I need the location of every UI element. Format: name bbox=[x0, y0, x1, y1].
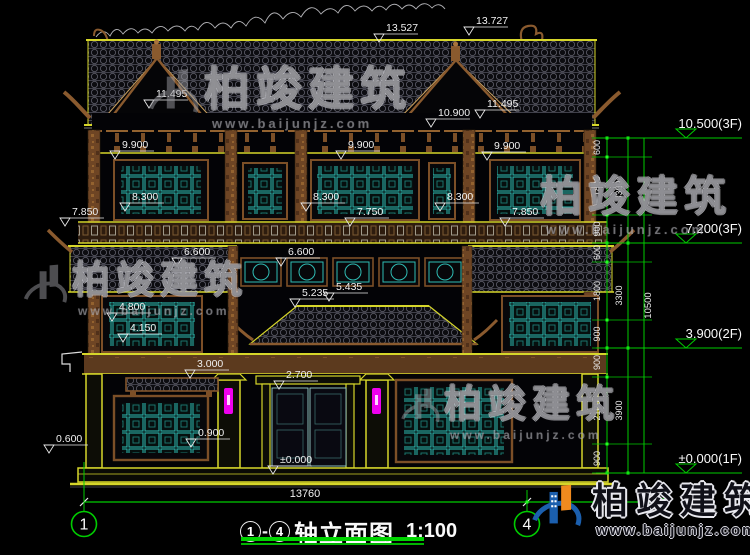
spot-elevation-value: 11.495 bbox=[156, 88, 187, 100]
spot-elevation-value: ±0.000 bbox=[280, 454, 312, 466]
dimension-node bbox=[606, 156, 609, 159]
spot-elevation-value: 13.727 bbox=[476, 15, 508, 27]
spot-elevation-value: 7.850 bbox=[512, 206, 538, 218]
spot-elevation-value: 7.850 bbox=[72, 206, 98, 218]
dimension-segment-value: 1800 bbox=[592, 176, 602, 196]
spot-elevation-value: 6.600 bbox=[288, 246, 314, 258]
spot-elevation-value: 4.800 bbox=[119, 301, 145, 313]
spot-elevation-value: 3.000 bbox=[197, 358, 223, 370]
dimension-node bbox=[606, 443, 609, 446]
spot-elevation-value: 13.527 bbox=[386, 22, 418, 34]
dimension-segment-value: 600 bbox=[592, 140, 602, 155]
axis-bubble-1-label: 1 bbox=[80, 517, 89, 534]
building-graphics bbox=[48, 4, 634, 487]
dimension-segment-value: 2100 bbox=[592, 400, 602, 420]
spot-elevation-value: 9.900 bbox=[122, 139, 148, 151]
dimension-segment-value: 900 bbox=[592, 326, 602, 341]
spot-elevation-value: 8.300 bbox=[447, 191, 473, 203]
dimension-segment-value: 900 bbox=[592, 451, 602, 466]
spot-elevation-value: 11.495 bbox=[487, 98, 518, 110]
title-underline-2 bbox=[241, 543, 424, 545]
spot-elevation-value: 0.900 bbox=[198, 427, 224, 439]
axis-bubble-4-label: 4 bbox=[523, 517, 532, 534]
spot-elevation-value: 2.700 bbox=[286, 369, 312, 381]
dimension-segment-value: 900 bbox=[592, 355, 602, 370]
spot-elevation-value: 0.600 bbox=[56, 433, 82, 445]
dimension-segment-value: 900 bbox=[592, 221, 602, 236]
spot-elevation-value: 4.150 bbox=[130, 322, 156, 334]
spot-elevation-value: 8.300 bbox=[313, 191, 339, 203]
dimension-node bbox=[606, 261, 609, 264]
dimension-segment-value: 600 bbox=[592, 245, 602, 260]
spot-elevation-triangle bbox=[464, 27, 474, 35]
spot-elevation-value: 10.900 bbox=[438, 107, 470, 119]
dimension-segment-value: 1800 bbox=[592, 281, 602, 301]
spot-elevation-triangle bbox=[44, 445, 54, 453]
right-dimension-chain: 6001800900600180090090021009003300330039… bbox=[592, 116, 742, 475]
spot-elevation-value: 8.300 bbox=[132, 191, 158, 203]
dimension-subtotal-value: 3300 bbox=[614, 180, 624, 200]
third-floor-windows bbox=[114, 160, 580, 220]
dimension-subtotal-value: 3300 bbox=[614, 285, 624, 305]
dimension-node bbox=[606, 319, 609, 322]
dimension-overall-value: 10500 bbox=[643, 292, 654, 318]
overall-width-dimension: 13760 bbox=[290, 488, 321, 500]
spot-elevation-value: 9.900 bbox=[494, 140, 520, 152]
spot-elevation-value: 5.435 bbox=[336, 281, 362, 293]
spot-elevation-value: 6.600 bbox=[184, 246, 210, 258]
dimension-subtotal-value: 3900 bbox=[614, 400, 624, 420]
elevation-drawing: 13760 1 4 13.52713.72711.49511.49510.900… bbox=[0, 0, 750, 555]
spot-elevation-triangle bbox=[60, 218, 70, 226]
dimension-node bbox=[606, 376, 609, 379]
spot-elevation-value: 5.235 bbox=[302, 287, 328, 299]
cad-elevation-screenshot: 13760 1 4 13.52713.72711.49511.49510.900… bbox=[0, 0, 750, 555]
title-underline bbox=[241, 537, 424, 541]
spot-elevation-value: 9.900 bbox=[348, 139, 374, 151]
spot-elevation-value: 7.750 bbox=[357, 206, 383, 218]
dimension-node bbox=[606, 214, 609, 217]
